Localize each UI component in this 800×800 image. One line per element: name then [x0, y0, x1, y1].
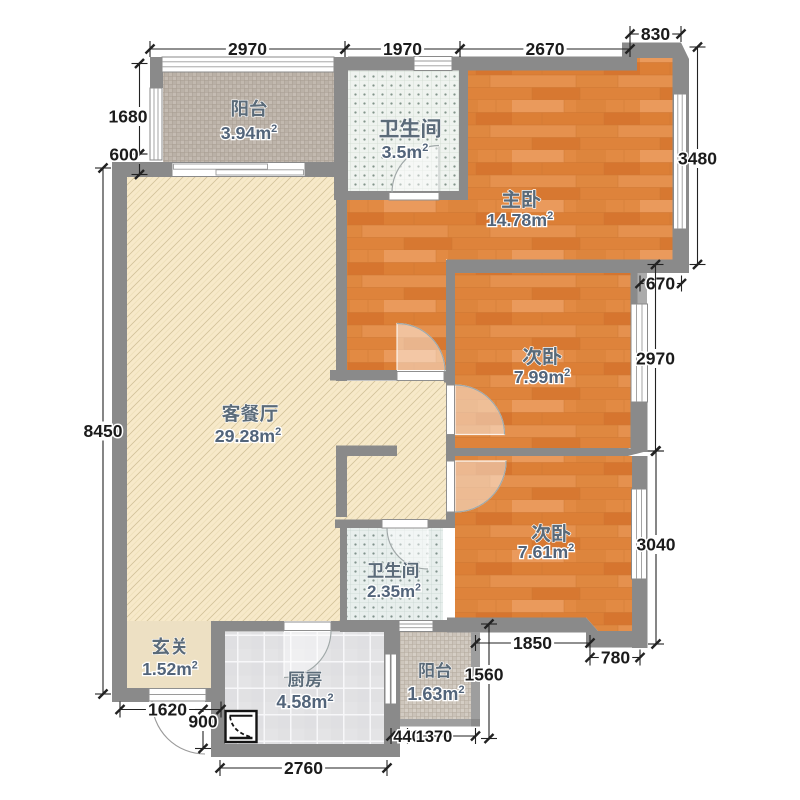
svg-text:3.94m2: 3.94m2 [221, 123, 278, 143]
svg-text:3040: 3040 [637, 535, 676, 555]
svg-text:3480: 3480 [678, 149, 717, 169]
svg-text:7.61m2: 7.61m2 [518, 542, 575, 562]
svg-text:14.78m2: 14.78m2 [487, 210, 553, 230]
svg-text:900: 900 [188, 712, 217, 732]
svg-text:670: 670 [646, 274, 675, 294]
svg-text:3.5m2: 3.5m2 [382, 142, 429, 162]
svg-text:2670: 2670 [526, 39, 565, 59]
svg-text:7.99m2: 7.99m2 [514, 367, 571, 387]
svg-text:1850: 1850 [513, 633, 552, 653]
svg-text:2.35m2: 2.35m2 [367, 582, 421, 602]
svg-text:4.58m2: 4.58m2 [276, 692, 333, 712]
svg-text:600: 600 [109, 145, 138, 165]
svg-text:1.63m2: 1.63m2 [407, 684, 464, 704]
svg-text:830: 830 [641, 24, 670, 44]
svg-text:1620: 1620 [148, 700, 187, 720]
svg-text:2760: 2760 [284, 758, 323, 778]
svg-text:2970: 2970 [228, 39, 267, 59]
svg-text:1370: 1370 [416, 728, 453, 746]
svg-text:1680: 1680 [109, 107, 148, 127]
svg-text:8450: 8450 [84, 421, 123, 441]
svg-text:780: 780 [601, 648, 630, 668]
svg-text:1.52m2: 1.52m2 [142, 659, 198, 679]
svg-text:1970: 1970 [383, 39, 422, 59]
svg-text:2970: 2970 [636, 349, 675, 369]
svg-text:29.28m2: 29.28m2 [215, 426, 281, 446]
svg-text:1560: 1560 [465, 665, 504, 685]
